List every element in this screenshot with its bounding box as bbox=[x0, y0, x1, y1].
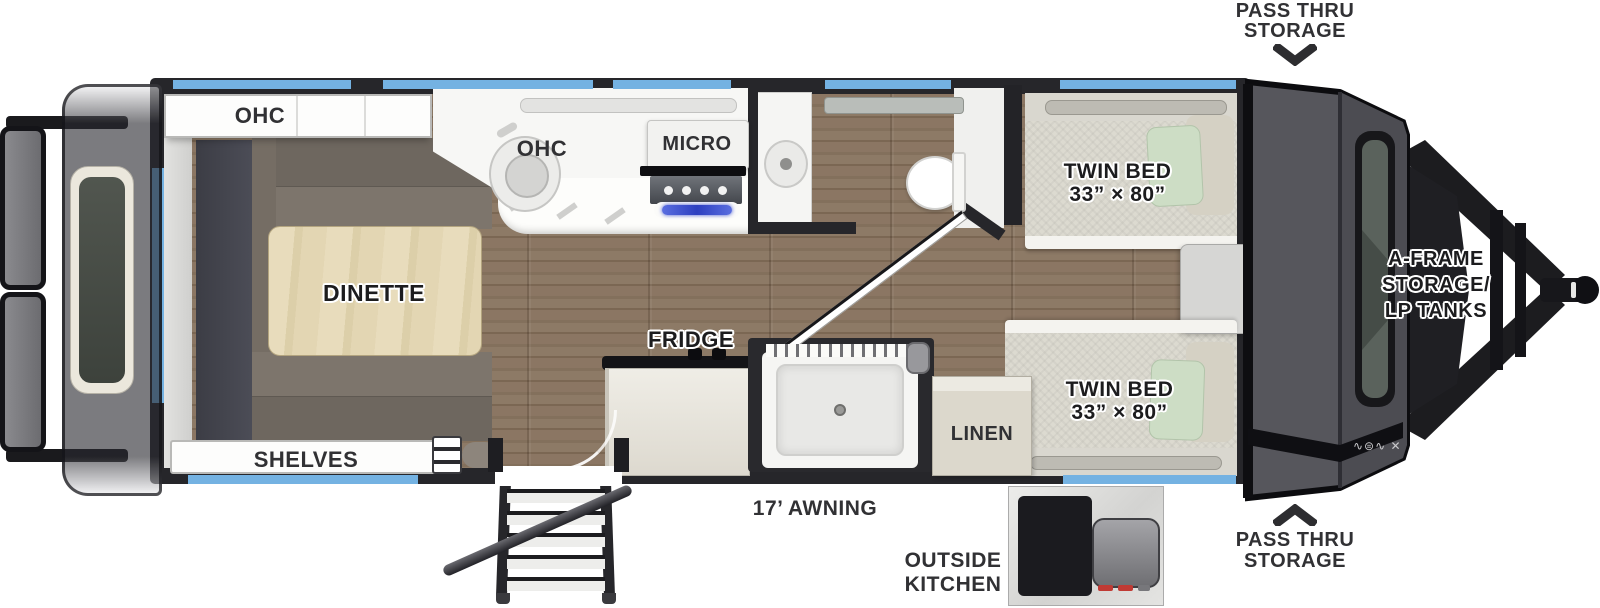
bed-bottom-shelf-slot bbox=[1030, 456, 1222, 470]
fridge-label: FRIDGE bbox=[625, 328, 757, 351]
window-strip bbox=[613, 80, 731, 89]
step-foot bbox=[602, 593, 616, 604]
pass-thru-bottom-line2: STORAGE bbox=[1205, 551, 1385, 572]
bath-window bbox=[824, 97, 964, 114]
micro-label: MICRO bbox=[650, 134, 744, 155]
shower-curtain bbox=[766, 344, 916, 357]
bath-sink-drain bbox=[780, 158, 792, 170]
range-glow bbox=[662, 205, 732, 215]
ohc-rear-label: OHC bbox=[218, 104, 302, 127]
window-strip bbox=[1060, 80, 1236, 89]
dinette-bench-bottom-backrest bbox=[252, 396, 492, 441]
dinette-bench-top-seat bbox=[252, 186, 492, 229]
bath-bottom-wall bbox=[748, 222, 856, 234]
step-tread bbox=[507, 577, 605, 591]
cooktop-knob bbox=[682, 186, 691, 195]
pass-thru-storage-bottom: PASS THRU STORAGE bbox=[1205, 504, 1385, 572]
window-strip bbox=[173, 80, 351, 89]
grill-knob-gray bbox=[1138, 585, 1150, 591]
bedroom-divider-post bbox=[1004, 85, 1022, 225]
awning-label: 17’ AWNING bbox=[715, 498, 915, 520]
arrow-up-icon bbox=[1273, 504, 1317, 526]
linen-label: LINEN bbox=[934, 424, 1030, 445]
twin-bed-bottom-line1: TWIN BED bbox=[1032, 378, 1207, 401]
ohc-kitchen-label: OHC bbox=[502, 137, 582, 160]
window-strip bbox=[188, 475, 418, 484]
shelves-end-unit bbox=[432, 436, 462, 474]
cooktop-knob bbox=[664, 186, 673, 195]
outside-kitchen-grill bbox=[1092, 518, 1160, 588]
counter-top-groove bbox=[520, 98, 737, 113]
pass-thru-storage-top: PASS THRU STORAGE bbox=[1205, 1, 1385, 66]
pass-thru-top-line2: STORAGE bbox=[1205, 21, 1385, 41]
hitch-pin bbox=[1571, 282, 1576, 298]
rear-wardrobe bbox=[196, 140, 257, 440]
shower-corner-cylinder bbox=[906, 342, 930, 374]
rear-bumper-panel-lower bbox=[0, 292, 46, 452]
outside-kitchen-label: OUTSIDE KITCHEN bbox=[885, 549, 1021, 597]
shelves-label: SHELVES bbox=[220, 448, 392, 471]
grill-knob-red bbox=[1098, 585, 1113, 591]
shower-drain bbox=[834, 404, 846, 416]
window-strip bbox=[383, 80, 593, 89]
step-tread bbox=[507, 555, 605, 569]
outside-kitchen-line1: OUTSIDE bbox=[885, 549, 1021, 573]
twin-bed-top-line1: TWIN BED bbox=[1030, 160, 1205, 183]
door-jamb-right bbox=[614, 438, 629, 472]
grill-knob-red bbox=[1118, 585, 1133, 591]
cabinet-divider bbox=[364, 96, 366, 136]
bath-left-wall bbox=[748, 88, 758, 234]
window-strip bbox=[825, 80, 951, 89]
a-frame-line2: STORAGE/ bbox=[1368, 272, 1504, 298]
dinette-label: DINETTE bbox=[288, 281, 460, 305]
a-frame-crossbar bbox=[1515, 223, 1526, 357]
front-cap-decal-icons: ∿⊜∿ ✕ bbox=[1353, 439, 1402, 453]
cooktop-knob bbox=[700, 186, 709, 195]
range-hood-bar bbox=[640, 166, 746, 176]
a-frame-line1: A-FRAME bbox=[1368, 246, 1504, 272]
rear-wall-liner bbox=[164, 94, 192, 468]
window-strip bbox=[1063, 475, 1236, 484]
outside-kitchen-griddle bbox=[1018, 496, 1092, 596]
pass-thru-bottom-line1: PASS THRU bbox=[1205, 530, 1385, 551]
toilet-tank bbox=[952, 152, 966, 212]
rear-cap-window bbox=[79, 177, 125, 383]
twin-bed-top-label: TWIN BED 33” × 80” bbox=[1030, 160, 1205, 206]
pass-thru-top-line1: PASS THRU bbox=[1205, 1, 1385, 21]
bed-top-shelf-slot bbox=[1045, 100, 1227, 115]
twin-bed-top-line2: 33” × 80” bbox=[1030, 183, 1205, 206]
step-foot bbox=[496, 593, 510, 604]
bed-bottom-base-lip bbox=[1005, 320, 1237, 333]
twin-bed-bottom-label: TWIN BED 33” × 80” bbox=[1032, 378, 1207, 424]
dinette-bench-bottom-seat bbox=[252, 352, 492, 396]
a-frame-storage-label: A-FRAME STORAGE/ LP TANKS bbox=[1368, 246, 1504, 324]
door-jamb-left bbox=[488, 438, 503, 472]
cooktop-knob bbox=[718, 186, 727, 195]
a-frame-line3: LP TANKS bbox=[1368, 298, 1504, 324]
arrow-down-icon bbox=[1273, 44, 1317, 66]
outside-kitchen-line2: KITCHEN bbox=[885, 573, 1021, 597]
rear-bumper-panel-upper bbox=[0, 126, 46, 290]
rv-floorplan: OHC DINETTE SHELVES OHC MICRO FRIDG bbox=[0, 0, 1600, 608]
twin-bed-bottom-line2: 33” × 80” bbox=[1032, 401, 1207, 424]
